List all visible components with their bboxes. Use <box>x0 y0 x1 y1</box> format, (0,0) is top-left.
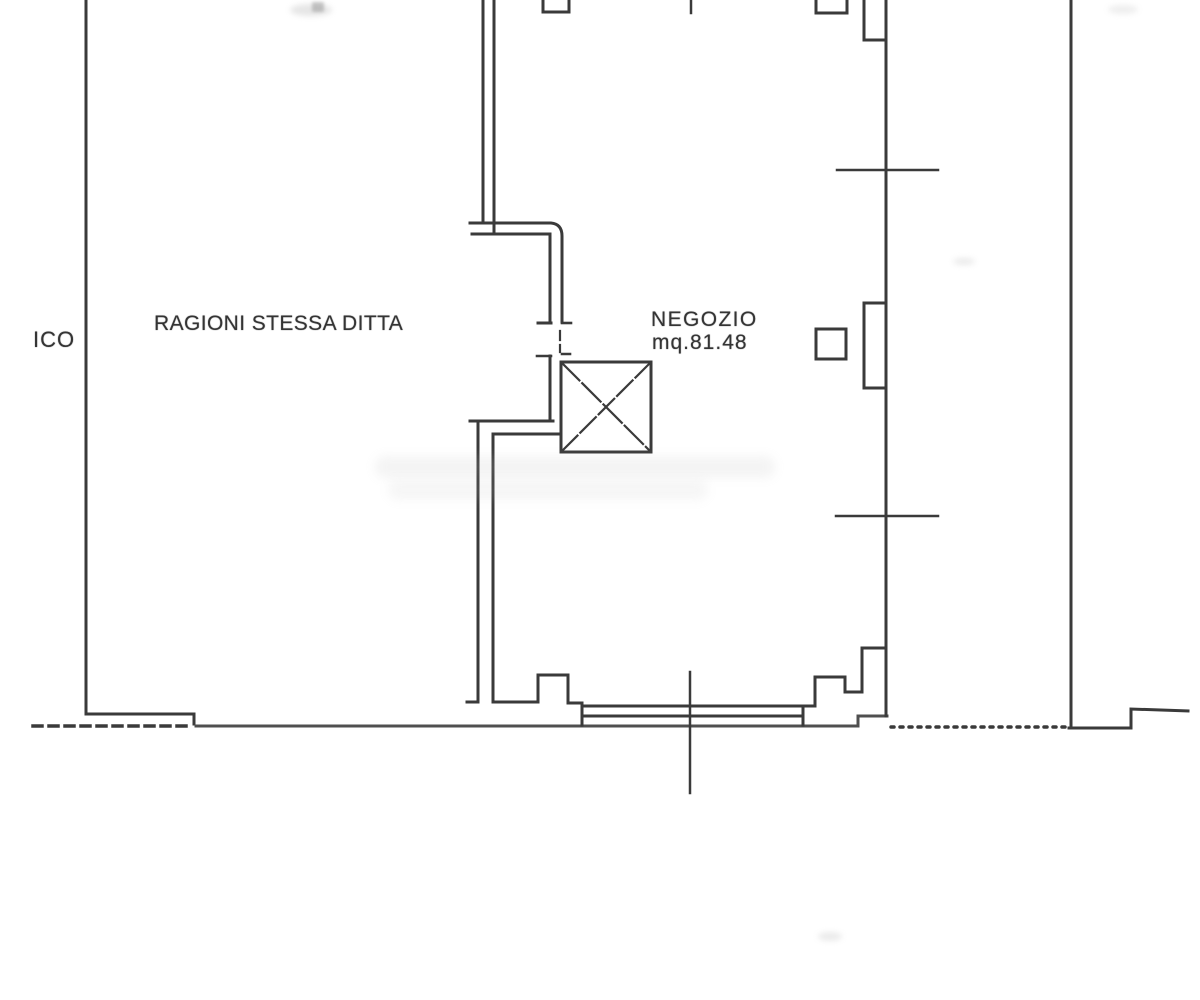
storefront-threshold <box>582 703 803 725</box>
storefront-left-wall <box>493 675 582 703</box>
crossed-square-shaft <box>561 362 651 452</box>
partition-horiz-upper-outer <box>470 223 562 322</box>
scan-artifact-smudge <box>312 2 324 12</box>
ground-step-bottom-right <box>1069 709 1188 728</box>
left-wall-footing <box>86 714 194 724</box>
central-partition-upper <box>470 0 562 323</box>
doorway <box>537 323 571 356</box>
floor-plan-linework <box>0 0 1200 1000</box>
storefront <box>493 648 884 725</box>
scanned-floor-plan-page: ICO RAGIONI STESSA DITTA NEGOZIO mq.81.4… <box>0 0 1200 1000</box>
label-room-name: NEGOZIO <box>651 308 758 332</box>
top-edge-features <box>543 0 847 13</box>
scan-artifact-band <box>388 480 708 500</box>
label-adjacent-property: RAGIONI STESSA DITTA <box>154 312 403 336</box>
pillar-square <box>816 329 846 359</box>
top-square-right <box>816 0 847 13</box>
top-square-center <box>543 0 569 12</box>
storefront-right-steps <box>803 648 884 706</box>
right-shop-wall <box>816 0 938 716</box>
right-wall-top-recess <box>864 0 886 40</box>
central-partition-lower <box>467 356 561 702</box>
scan-artifact-band <box>375 456 775 478</box>
left-boundary-wall <box>86 0 194 724</box>
label-adjacent-left-truncated: ICO <box>33 327 75 353</box>
scan-artifact-smudge <box>953 258 975 265</box>
partition-horiz-upper-inner <box>472 234 551 323</box>
scan-artifact-smudge <box>1108 5 1138 14</box>
right-wall-mid-recess <box>864 303 886 388</box>
ground-boundary <box>33 709 1188 728</box>
door-jamb-lower <box>537 354 570 356</box>
label-room-area: mq.81.48 <box>652 331 748 355</box>
scan-artifact-smudge <box>818 932 842 941</box>
scan-artifact-smudge <box>290 4 332 16</box>
